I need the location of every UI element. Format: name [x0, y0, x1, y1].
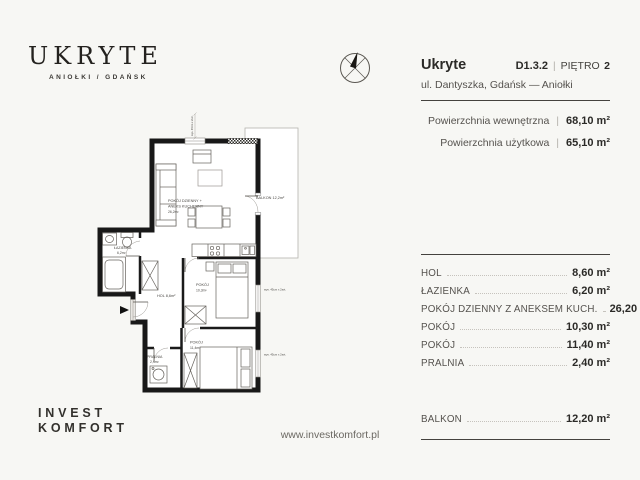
room-row-value: 11,40 m² — [567, 339, 610, 351]
laundry-label: PRALNIA — [147, 355, 163, 359]
laundry-furniture — [150, 366, 167, 383]
balcony-row: BALKON 12,20 m² — [421, 413, 610, 431]
living-room-area: 26,2m² — [168, 210, 179, 214]
room-row: PRALNIA 2,40 m² — [421, 357, 610, 375]
floor-value: 2 — [604, 60, 610, 72]
room-row-label: POKÓJ DZIENNY Z ANEKSEM KUCH. — [421, 304, 598, 315]
room-row-value: 8,60 m² — [572, 267, 610, 279]
dotted-leader — [475, 293, 567, 294]
room-row-label: HOL — [421, 268, 442, 279]
brand-logo-text: UKRYTE — [28, 42, 163, 70]
living-room-label2: ANEKS KUCHENNY — [168, 205, 204, 209]
summary-separator: | — [556, 138, 559, 149]
project-name: Ukryte — [421, 57, 466, 73]
dotted-leader — [603, 311, 605, 312]
spec-panel: Ukryte D1.3.2|PIĘTRO 2 ul. Dantyszka, Gd… — [421, 56, 610, 440]
room-list: HOL 8,60 m² ŁAZIENKA 6,20 m² POKÓJ DZIEN… — [421, 255, 610, 375]
dotted-leader — [469, 365, 567, 366]
room-row-label: POKÓJ — [421, 340, 455, 351]
floor-label: PIĘTRO — [561, 60, 600, 72]
room-row: POKÓJ DZIENNY Z ANEKSEM KUCH. 26,20 m² — [421, 303, 610, 321]
bathroom-label: ŁAZIENKA — [114, 246, 132, 250]
brand-tagline: ANIOŁKI / GDAŃSK — [28, 74, 163, 81]
dimension-note: wys. 45cm x 2szt. — [190, 115, 194, 136]
bedroom1-label: POKÓJ — [196, 282, 209, 287]
summary-value: 68,10 m² — [566, 115, 610, 127]
bathroom-area: 6,2m² — [117, 251, 127, 255]
bedroom2-furniture — [184, 347, 252, 389]
unit-card-page: UKRYTE ANIOŁKI / GDAŃSK — [0, 0, 640, 480]
bedroom2-label: POKÓJ — [190, 340, 203, 345]
bedroom1-area: 10,3m² — [196, 289, 207, 293]
unit-floor-group: D1.3.2|PIĘTRO 2 — [516, 56, 610, 74]
room-row-value: 26,20 m² — [610, 303, 640, 315]
dimension-line: wys. 45cm x 2szt. — [190, 113, 197, 140]
dotted-leader — [447, 275, 567, 276]
address: ul. Dantyszka, Gdańsk — Aniołki — [421, 79, 610, 91]
divider — [421, 439, 610, 440]
laundry-area: 2,4m² — [150, 360, 160, 364]
dotted-leader — [460, 347, 561, 348]
divider — [421, 100, 610, 101]
area-summary: Powierzchnia wewnętrzna|68,10 m² Powierz… — [421, 110, 610, 153]
summary-row: Powierzchnia wewnętrzna|68,10 m² — [421, 110, 610, 132]
room-row-value: 6,20 m² — [572, 285, 610, 297]
floor-plan: wys. 45cm x 2szt. — [90, 110, 320, 422]
website-url: www.investkomfort.pl — [240, 429, 420, 441]
room-row-value: 10,30 m² — [566, 321, 610, 333]
unit-id: D1.3.2 — [516, 60, 548, 72]
summary-row: Powierzchnia użytkowa|65,10 m² — [421, 132, 610, 154]
room-row: ŁAZIENKA 6,20 m² — [421, 285, 610, 303]
dotted-leader — [467, 421, 561, 422]
window-note-2: wys. 45cm x 2szt. — [264, 353, 286, 357]
balcony-row-value: 12,20 m² — [566, 413, 610, 425]
window-note-1: wys. 45cm x 2szt. — [264, 288, 286, 292]
room-row: POKÓJ 10,30 m² — [421, 321, 610, 339]
room-row: HOL 8,60 m² — [421, 267, 610, 285]
dotted-leader — [460, 329, 561, 330]
room-row-label: PRALNIA — [421, 358, 464, 369]
company-logo-line2: KOMFORT — [38, 421, 128, 436]
summary-label: Powierzchnia wewnętrzna — [428, 115, 549, 127]
summary-label: Powierzchnia użytkowa — [440, 137, 549, 149]
summary-separator: | — [556, 116, 559, 127]
hall-wardrobe — [142, 261, 158, 290]
bedroom2-area: 11,4m² — [190, 346, 201, 350]
company-logo-line1: INVEST — [38, 406, 128, 421]
entrance-arrow-icon — [120, 306, 129, 314]
living-room-label: POKÓJ DZIENNY + — [168, 198, 203, 203]
unit-header: Ukryte D1.3.2|PIĘTRO 2 — [421, 56, 610, 74]
brand-logo: UKRYTE ANIOŁKI / GDAŃSK — [28, 42, 163, 81]
balcony-row-label: BALKON — [421, 414, 462, 425]
hall-label: HOL 8,6m² — [157, 294, 176, 298]
summary-value: 65,10 m² — [566, 137, 610, 149]
header-separator: | — [553, 61, 556, 72]
compass-rose-icon — [333, 46, 377, 90]
balcony-label: BALKON 12,2m² — [256, 196, 285, 200]
room-row-label: POKÓJ — [421, 322, 455, 333]
room-row-value: 2,40 m² — [572, 357, 610, 369]
company-logo: INVEST KOMFORT — [38, 406, 128, 436]
room-row-label: ŁAZIENKA — [421, 286, 470, 297]
room-row: POKÓJ 11,40 m² — [421, 339, 610, 357]
